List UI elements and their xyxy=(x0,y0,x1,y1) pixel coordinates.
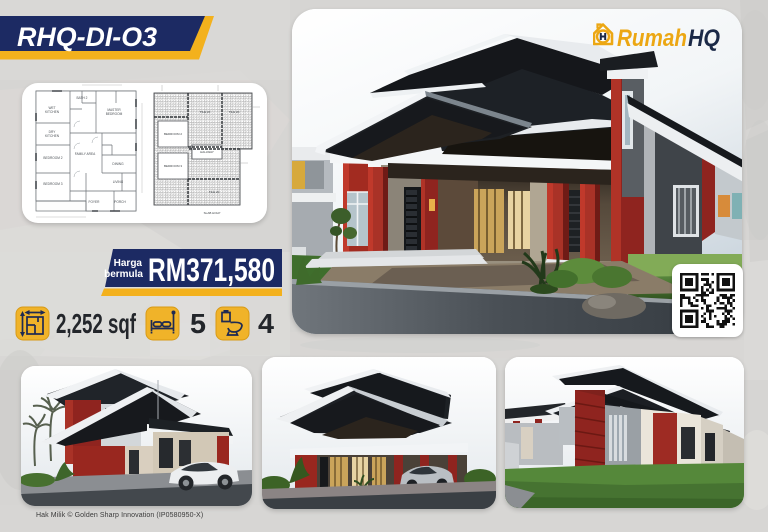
svg-text:RM371,580: RM371,580 xyxy=(148,252,275,288)
svg-text:HQ: HQ xyxy=(688,25,720,52)
svg-text:SLAB HOLP: SLAB HOLP xyxy=(204,211,221,215)
svg-text:HALLWAY: HALLWAY xyxy=(200,150,214,154)
svg-text:TILE 20: TILE 20 xyxy=(209,190,220,194)
svg-text:PORCH: PORCH xyxy=(114,200,126,204)
svg-text:2,252 sqf: 2,252 sqf xyxy=(56,308,136,339)
svg-text:BEDROOM 2: BEDROOM 2 xyxy=(164,132,182,136)
svg-text:BATH 2: BATH 2 xyxy=(77,96,88,100)
svg-text:4: 4 xyxy=(258,308,274,339)
svg-text:FOYER: FOYER xyxy=(89,200,101,204)
svg-text:FAMILY AREA: FAMILY AREA xyxy=(75,152,96,156)
svg-text:BEDROOM 3: BEDROOM 3 xyxy=(164,164,182,168)
svg-text:Rumah: Rumah xyxy=(617,25,687,52)
svg-text:BEDROOM 3: BEDROOM 3 xyxy=(43,182,62,186)
svg-text:TILE 20: TILE 20 xyxy=(200,110,211,114)
svg-text:bermula: bermula xyxy=(104,269,143,280)
svg-text:LIVING: LIVING xyxy=(113,180,124,184)
svg-text:BEDROOM 2: BEDROOM 2 xyxy=(43,156,62,160)
svg-text:5: 5 xyxy=(190,308,206,339)
svg-text:Harga: Harga xyxy=(114,258,143,269)
svg-text:TILE 20: TILE 20 xyxy=(229,110,240,114)
svg-text:BEDROOM: BEDROOM xyxy=(106,112,123,116)
svg-text:DINING: DINING xyxy=(112,162,124,166)
svg-text:KITCHEN: KITCHEN xyxy=(45,134,60,138)
svg-text:KITCHEN: KITCHEN xyxy=(45,110,60,114)
svg-text:RHQ-DI-O3: RHQ-DI-O3 xyxy=(17,22,157,52)
